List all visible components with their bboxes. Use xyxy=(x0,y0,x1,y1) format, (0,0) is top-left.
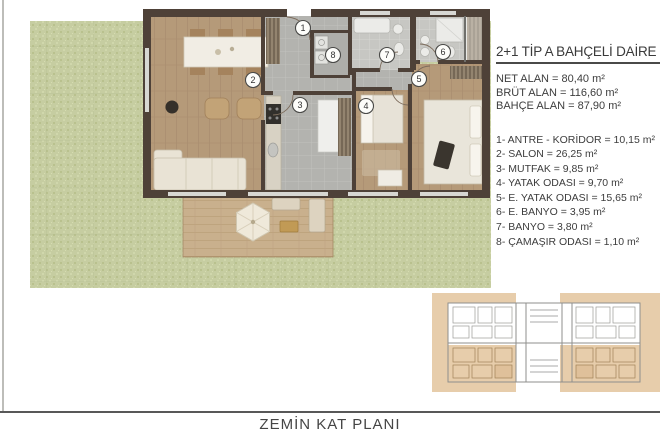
svg-text:8: 8 xyxy=(330,50,335,60)
brochure-page: 1 2 3 4 5 6 7 8 xyxy=(0,0,660,437)
area-summary: NET ALAN = 80,40 m² BRÜT ALAN = 116,60 m… xyxy=(496,73,660,114)
wood-deck xyxy=(183,193,333,257)
net-area-line: NET ALAN = 80,40 m² xyxy=(496,73,660,87)
room-number-badge-4: 4 xyxy=(359,99,374,114)
svg-text:2: 2 xyxy=(250,75,255,85)
svg-text:3: 3 xyxy=(297,100,302,110)
entry-cabinet xyxy=(266,18,280,64)
room-number-badge-3: 3 xyxy=(293,98,308,113)
room-number-badge-7: 7 xyxy=(380,48,395,63)
room-line-3: 3- MUTFAK = 9,85 m² xyxy=(496,162,660,177)
svg-text:6: 6 xyxy=(440,47,445,57)
info-panel: 2+1 TİP A BAHÇELİ DAİRE NET ALAN = 80,40… xyxy=(496,44,660,249)
page-left-border xyxy=(2,0,4,411)
room-number-badge-8: 8 xyxy=(326,48,341,63)
room-line-7: 7- BANYO = 3,80 m² xyxy=(496,220,660,235)
svg-text:4: 4 xyxy=(363,101,368,111)
outdoor-table xyxy=(280,221,298,232)
room-legend: 1- ANTRE - KORİDOR = 10,15 m² 2- SALON =… xyxy=(496,133,660,250)
garden-area-line: BAHÇE ALAN = 87,90 m² xyxy=(496,100,660,114)
svg-text:1: 1 xyxy=(300,23,305,33)
floor-lamp xyxy=(166,101,179,114)
apartment-type-title: 2+1 TİP A BAHÇELİ DAİRE xyxy=(496,44,660,64)
hall-closet xyxy=(467,17,482,61)
outdoor-bench xyxy=(272,198,300,210)
room-line-1: 1- ANTRE - KORİDOR = 10,15 m² xyxy=(496,133,660,148)
footer-divider xyxy=(0,411,660,413)
dining-table xyxy=(184,29,268,75)
room-number-badge-1: 1 xyxy=(296,21,311,36)
room-line-5: 5- E. YATAK ODASI = 15,65 m² xyxy=(496,191,660,206)
room-number-badge-6: 6 xyxy=(436,45,451,60)
outdoor-chaise xyxy=(309,199,325,232)
key-plan xyxy=(432,293,660,392)
svg-text:7: 7 xyxy=(384,50,389,60)
gross-area-line: BRÜT ALAN = 116,60 m² xyxy=(496,87,660,101)
room-line-6: 6- E. BANYO = 3,95 m² xyxy=(496,205,660,220)
svg-text:5: 5 xyxy=(416,74,421,84)
room-line-4: 4- YATAK ODASI = 9,70 m² xyxy=(496,176,660,191)
room-number-badge-5: 5 xyxy=(412,72,427,87)
room-number-badge-2: 2 xyxy=(246,73,261,88)
floor-plan-caption: ZEMİN KAT PLANI xyxy=(0,416,660,433)
apartment-plan: 1 2 3 4 5 6 7 8 xyxy=(143,9,490,198)
room-line-8: 8- ÇAMAŞIR ODASI = 1,10 m² xyxy=(496,235,660,250)
room-line-2: 2- SALON = 26,25 m² xyxy=(496,147,660,162)
